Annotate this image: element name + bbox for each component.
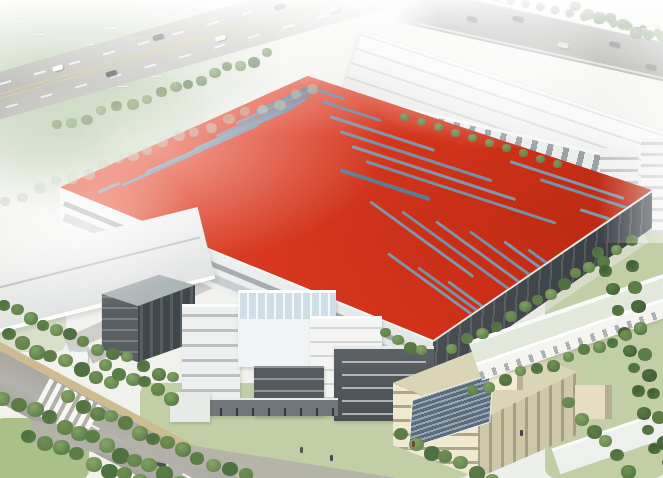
- tree: [157, 137, 168, 147]
- tree: [438, 450, 452, 463]
- tree: [531, 363, 543, 374]
- tree: [127, 99, 139, 110]
- tree: [113, 153, 124, 163]
- tree: [578, 344, 590, 355]
- tree: [196, 76, 207, 86]
- tree: [141, 458, 157, 472]
- tree: [485, 474, 499, 478]
- tree: [637, 407, 651, 420]
- tree: [611, 245, 622, 255]
- tree: [37, 436, 53, 450]
- tree: [291, 90, 301, 99]
- tree: [469, 466, 485, 478]
- car: [557, 42, 569, 49]
- tree: [532, 295, 543, 305]
- tree: [483, 382, 495, 393]
- tree: [547, 360, 560, 372]
- tree: [206, 123, 217, 133]
- tree: [485, 139, 494, 147]
- tree: [127, 454, 142, 468]
- tree: [58, 354, 73, 368]
- tree: [173, 130, 185, 141]
- tree: [111, 101, 122, 111]
- tree: [98, 160, 108, 169]
- tree: [558, 278, 571, 290]
- tree: [239, 468, 253, 478]
- tree: [223, 114, 235, 125]
- tree: [621, 465, 636, 478]
- tree: [647, 388, 660, 400]
- tree: [404, 342, 417, 354]
- tree: [657, 31, 663, 42]
- entrance-canopy: [188, 398, 338, 416]
- tree: [89, 371, 103, 384]
- factory-campus-rendering: [0, 0, 663, 478]
- tree: [170, 82, 182, 93]
- tree: [632, 385, 645, 397]
- tree: [606, 283, 620, 296]
- tree: [37, 320, 49, 331]
- car: [52, 64, 64, 72]
- tree: [132, 474, 148, 478]
- car: [645, 63, 657, 70]
- car: [466, 15, 478, 22]
- tree: [652, 411, 663, 424]
- tree: [63, 328, 77, 341]
- bird: [34, 34, 44, 39]
- tree: [24, 312, 38, 325]
- tree: [76, 400, 91, 414]
- tree: [83, 169, 95, 180]
- tree: [605, 13, 616, 23]
- tree: [657, 436, 663, 450]
- tree: [175, 442, 191, 456]
- tree: [61, 390, 75, 403]
- tree: [468, 134, 477, 142]
- tree: [142, 146, 152, 155]
- tree: [536, 155, 545, 163]
- tree: [599, 265, 612, 277]
- tree: [628, 281, 642, 294]
- tree: [394, 428, 408, 441]
- tree: [101, 464, 118, 478]
- tree: [142, 95, 152, 104]
- person: [520, 430, 523, 436]
- tree: [643, 30, 654, 40]
- tree: [167, 372, 179, 383]
- tree: [570, 268, 581, 278]
- tree: [50, 324, 63, 336]
- tree: [190, 452, 204, 465]
- tree: [607, 338, 618, 348]
- tree: [43, 350, 57, 363]
- tree: [0, 392, 10, 406]
- car: [609, 41, 621, 48]
- bird: [118, 86, 129, 92]
- tree: [240, 107, 250, 116]
- tree: [137, 360, 150, 372]
- tree: [446, 344, 457, 354]
- tree: [617, 19, 629, 30]
- tree: [563, 352, 574, 362]
- tree: [74, 362, 90, 376]
- tree: [626, 235, 638, 246]
- tree: [461, 333, 473, 344]
- tree: [53, 440, 70, 455]
- tree: [424, 446, 440, 460]
- tree: [491, 322, 502, 332]
- tree: [417, 118, 426, 126]
- tree: [146, 433, 160, 446]
- tree: [52, 120, 62, 129]
- tree: [599, 435, 612, 447]
- tree: [515, 366, 526, 376]
- tree: [156, 466, 173, 478]
- bird: [17, 16, 26, 21]
- tree: [582, 9, 594, 20]
- tree: [2, 328, 16, 341]
- tree: [575, 413, 589, 426]
- tree: [623, 345, 637, 358]
- tree: [99, 359, 112, 371]
- tree: [570, 1, 581, 11]
- car: [152, 33, 164, 41]
- tree: [626, 260, 639, 272]
- tree: [553, 160, 562, 168]
- tree: [638, 348, 652, 361]
- tree: [631, 300, 646, 314]
- tree: [235, 61, 246, 71]
- tree: [0, 197, 10, 206]
- tree: [620, 330, 632, 341]
- tree: [502, 144, 511, 152]
- tree: [51, 176, 61, 185]
- tree: [307, 84, 318, 94]
- tree: [67, 174, 78, 184]
- tree: [519, 301, 532, 313]
- tree: [118, 416, 133, 430]
- tree: [0, 300, 10, 311]
- tree: [505, 311, 517, 322]
- bird: [152, 76, 162, 81]
- tree: [628, 363, 640, 374]
- tree: [451, 129, 460, 137]
- bird: [106, 28, 117, 34]
- person: [412, 441, 415, 447]
- tree: [612, 305, 624, 316]
- tree: [400, 113, 409, 121]
- tree: [248, 57, 260, 68]
- tree: [11, 398, 27, 412]
- tree: [117, 467, 132, 478]
- tree: [86, 457, 102, 471]
- tree: [42, 410, 57, 424]
- bird: [58, 20, 68, 25]
- tree: [467, 385, 478, 395]
- tree: [630, 27, 643, 39]
- tree: [15, 336, 30, 350]
- tree: [634, 322, 647, 334]
- tree: [152, 368, 166, 381]
- canopy-columns: [188, 408, 338, 416]
- tree: [593, 341, 606, 353]
- tree: [156, 87, 167, 97]
- tree: [85, 430, 100, 444]
- person: [300, 447, 303, 453]
- tree: [189, 128, 199, 137]
- tree: [160, 436, 175, 450]
- tree: [112, 368, 126, 381]
- tree: [77, 336, 89, 347]
- person: [330, 455, 333, 461]
- car: [512, 15, 524, 22]
- tree: [164, 392, 179, 406]
- tree: [545, 289, 557, 300]
- tree: [499, 374, 512, 386]
- tree: [151, 383, 165, 396]
- tree: [610, 449, 624, 462]
